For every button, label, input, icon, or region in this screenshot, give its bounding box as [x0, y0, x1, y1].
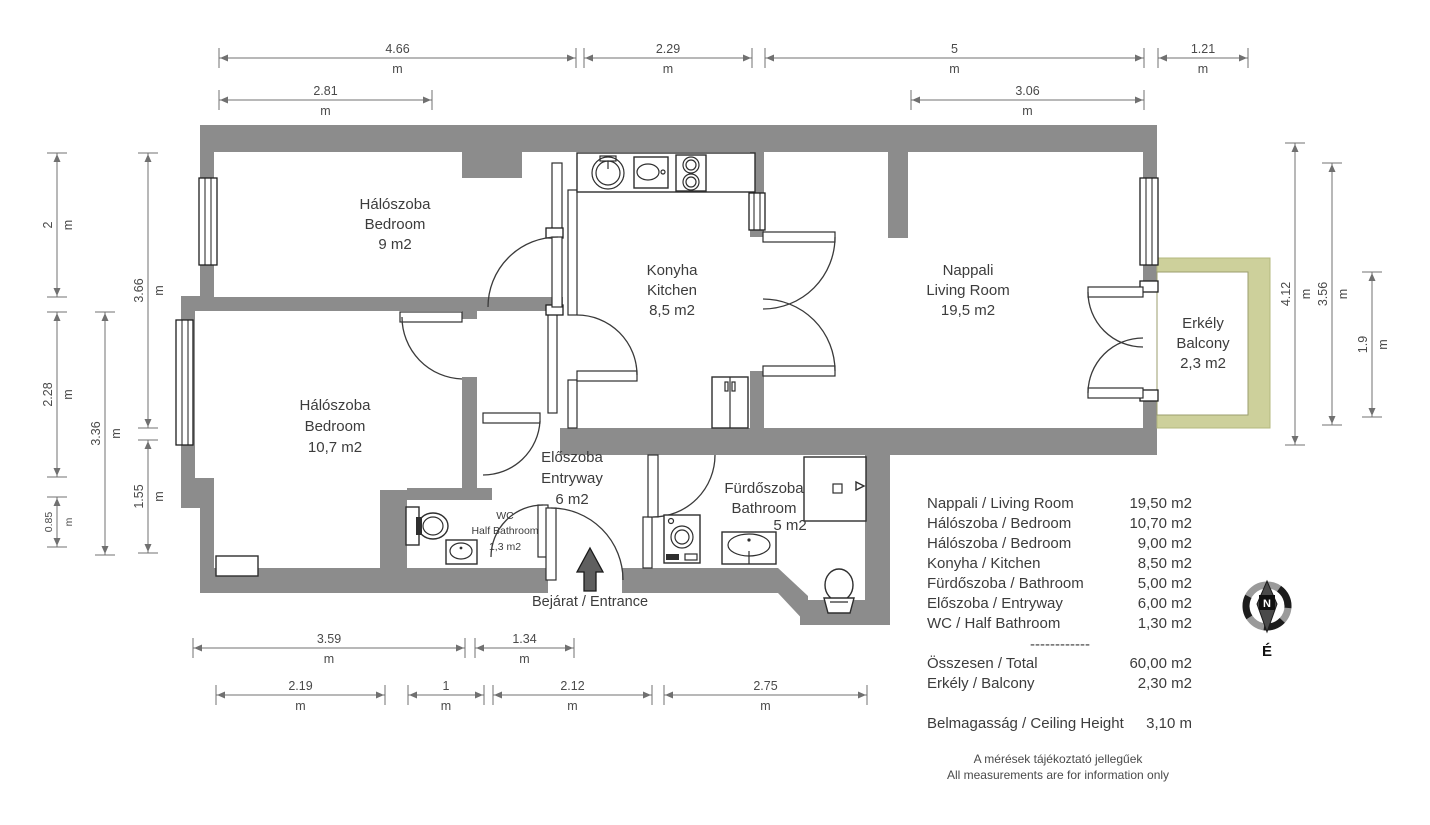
legend-row-value: 8,50 m2 — [1138, 555, 1192, 572]
entrance-label: Bejárat / Entrance — [532, 594, 648, 610]
dimension: 2.81m — [219, 84, 432, 118]
room-label-kitchen: Konyha Kitchen 8,5 m2 — [647, 262, 699, 319]
svg-text:6 m2: 6 m2 — [555, 491, 588, 508]
dimension: 2m — [41, 153, 75, 297]
dimension-arrow — [1369, 408, 1376, 416]
dimension-arrow — [766, 55, 774, 62]
svg-text:2,30 m2: 2,30 m2 — [1138, 675, 1192, 692]
dimension-arrow — [1329, 164, 1336, 172]
dimension-unit: m — [1376, 339, 1390, 349]
dimension-unit: m — [1336, 289, 1350, 299]
wc-toilet-icon — [406, 507, 448, 545]
french-doors-balcony — [1088, 287, 1143, 398]
dimension: 4.66m — [219, 42, 576, 76]
window-living-room — [1140, 178, 1158, 265]
svg-text:Nappali: Nappali — [943, 262, 994, 279]
svg-text:Előszoba: Előszoba — [541, 449, 603, 466]
dimension-value: 3.36 — [89, 421, 103, 445]
svg-text:60,00 m2: 60,00 m2 — [1129, 655, 1192, 672]
door-bedroom-10 — [400, 312, 462, 379]
dimension-arrow — [145, 544, 152, 552]
dimension-value: 1.55 — [132, 484, 146, 508]
svg-text:Balcony: Balcony — [1176, 335, 1230, 352]
svg-text:Bedroom: Bedroom — [365, 216, 426, 233]
dimension-value: 1.21 — [1191, 42, 1215, 56]
dimension: 3.56m — [1316, 163, 1350, 425]
legend-row-label: Hálószoba / Bedroom — [927, 515, 1071, 532]
svg-text:Belmagasság / Ceiling Height: Belmagasság / Ceiling Height — [927, 715, 1125, 732]
dimension-arrow — [743, 55, 751, 62]
legend-total-row: Összesen / Total 60,00 m2 — [927, 654, 1192, 672]
ceiling-height-row: Belmagasság / Ceiling Height 3,10 m — [927, 715, 1192, 732]
legend-row-label: Fürdőszoba / Bathroom — [927, 575, 1084, 592]
room-label-bedroom-9: Hálószoba Bedroom 9 m2 — [360, 196, 432, 253]
dimension-value: 0.85 — [43, 512, 55, 533]
room-label-entryway: Előszoba Entryway 6 m2 — [541, 449, 603, 508]
dimension-unit: m — [760, 699, 770, 713]
dimension: 1.9m — [1356, 272, 1390, 417]
dimension-arrow — [585, 55, 593, 62]
svg-text:Hálószoba: Hálószoba — [300, 397, 372, 414]
dimension-value: 5 — [951, 42, 958, 56]
dimension: 0.85m — [43, 497, 75, 547]
window-bedroom-top — [199, 178, 217, 265]
dimension: 1.34m — [475, 632, 574, 666]
svg-text:Half Bathroom: Half Bathroom — [471, 525, 538, 537]
dimension-arrow — [54, 313, 61, 321]
dimension-arrow — [475, 692, 483, 699]
dimension-arrow — [1135, 97, 1143, 104]
svg-text:Living Room: Living Room — [926, 282, 1009, 299]
dimension-value: 1.9 — [1356, 336, 1370, 353]
svg-text:3,10 m: 3,10 m — [1146, 715, 1192, 732]
dimension-arrow — [217, 692, 225, 699]
dimension: 2.19m — [216, 679, 385, 713]
legend-row: WC / Half Bathroom1,30 m2 — [927, 615, 1192, 632]
dimension-value: 2.29 — [656, 42, 680, 56]
legend-row: Hálószoba / Bedroom10,70 m2 — [927, 515, 1192, 532]
legend-balcony-row: Erkély / Balcony 2,30 m2 — [927, 675, 1192, 692]
dimension-value: 4.66 — [385, 42, 409, 56]
compass-icon: N É — [1238, 577, 1296, 660]
dimension-value: 3.06 — [1015, 84, 1039, 98]
radiator-icon — [216, 556, 258, 576]
svg-text:Entryway: Entryway — [541, 470, 603, 487]
kitchen-counter-icon — [577, 153, 755, 192]
dimension: 3.66m — [132, 153, 166, 428]
svg-text:Bathroom: Bathroom — [731, 500, 796, 517]
svg-text:Kitchen: Kitchen — [647, 282, 697, 299]
dimension-arrow — [423, 97, 431, 104]
dimension-value: 2.12 — [560, 679, 584, 693]
legend-row-value: 19,50 m2 — [1129, 495, 1192, 512]
svg-text:10,7 m2: 10,7 m2 — [308, 439, 362, 456]
svg-text:Erkély: Erkély — [1182, 315, 1224, 332]
legend-row-value: 5,00 m2 — [1138, 575, 1192, 592]
entrance-arrow-icon — [577, 548, 603, 591]
dimension-arrow — [54, 154, 61, 162]
dimension-value: 2.28 — [41, 382, 55, 406]
dimension-value: 2.75 — [753, 679, 777, 693]
legend-row-value: 9,00 m2 — [1138, 535, 1192, 552]
window-bedroom-bottom — [176, 320, 193, 445]
dimension-arrow — [145, 441, 152, 449]
dimension-value: 2.19 — [288, 679, 312, 693]
dimension-unit: m — [61, 220, 75, 230]
dimension: 5m — [765, 42, 1144, 76]
dimension-unit: m — [567, 699, 577, 713]
dimension-unit: m — [663, 62, 673, 76]
legend-row: Fürdőszoba / Bathroom5,00 m2 — [927, 575, 1192, 592]
dimension-unit: m — [1198, 62, 1208, 76]
legend-row-label: Konyha / Kitchen — [927, 555, 1040, 572]
dimension-unit: m — [519, 652, 529, 666]
dimension-arrow — [565, 645, 573, 652]
legend-row: Konyha / Kitchen8,50 m2 — [927, 555, 1192, 572]
fridge-icon — [712, 377, 748, 428]
legend-row-label: Előszoba / Entryway — [927, 595, 1063, 612]
dimension-arrow — [54, 538, 61, 546]
floor-plan-page: Bejárat / Entrance Hálószoba Bedroom 9 m… — [0, 0, 1430, 825]
room-label-living-room: Nappali Living Room 19,5 m2 — [926, 262, 1009, 319]
dimension: 2.28m — [41, 312, 75, 477]
dimension-arrow — [409, 692, 417, 699]
dimension-unit: m — [295, 699, 305, 713]
svg-text:Konyha: Konyha — [647, 262, 699, 279]
window-kitchen — [749, 193, 765, 230]
dimension: 2.75m — [664, 679, 867, 713]
disclaimer-line-2: All measurements are for information onl… — [947, 768, 1169, 782]
dimension-unit: m — [320, 104, 330, 118]
dimension: 2.12m — [493, 679, 652, 713]
dimension: 2.29m — [584, 42, 752, 76]
svg-text:WC: WC — [496, 510, 514, 522]
dimension-arrow — [102, 546, 109, 554]
bathroom-toilet-icon — [824, 569, 854, 613]
svg-text:1,3 m2: 1,3 m2 — [489, 541, 521, 553]
dimension-arrow — [476, 645, 484, 652]
door-bathroom — [648, 455, 715, 517]
dimension-arrow — [1159, 55, 1167, 62]
door-bedroom-9 — [488, 237, 562, 307]
dimension-unit: m — [1022, 104, 1032, 118]
svg-text:N: N — [1263, 598, 1271, 610]
dimension: 3.36m — [89, 312, 123, 555]
washing-machine-icon — [664, 515, 700, 563]
svg-text:8,5 m2: 8,5 m2 — [649, 302, 695, 319]
dimension-arrow — [1292, 144, 1299, 152]
legend-row: Nappali / Living Room19,50 m2 — [927, 495, 1192, 512]
dimension-arrow — [1292, 436, 1299, 444]
wc-sink-icon — [446, 540, 477, 564]
dimension-unit: m — [949, 62, 959, 76]
dimension-unit: m — [1299, 289, 1313, 299]
french-doors-kitchen-living — [763, 232, 835, 376]
dimension-arrow — [665, 692, 673, 699]
dimension-value: 3.66 — [132, 278, 146, 302]
svg-text:5 m2: 5 m2 — [773, 517, 806, 534]
dimension-arrow — [194, 645, 202, 652]
dimension-arrow — [858, 692, 866, 699]
svg-text:Erkély / Balcony: Erkély / Balcony — [927, 675, 1035, 692]
room-label-balcony: Erkély Balcony 2,3 m2 — [1176, 315, 1230, 372]
dimension-unit: m — [441, 699, 451, 713]
floor-plan-drawing: Bejárat / Entrance Hálószoba Bedroom 9 m… — [0, 0, 1430, 825]
dimension-unit: m — [324, 652, 334, 666]
dimension-unit: m — [152, 491, 166, 501]
dimension-unit: m — [392, 62, 402, 76]
dimension-arrow — [220, 55, 228, 62]
room-label-bedroom-10: Hálószoba Bedroom 10,7 m2 — [300, 397, 372, 456]
legend-row-label: Hálószoba / Bedroom — [927, 535, 1071, 552]
dimension-arrow — [145, 419, 152, 427]
legend-table: Nappali / Living Room19,50 m2Hálószoba /… — [927, 495, 1192, 632]
legend-row: Előszoba / Entryway6,00 m2 — [927, 595, 1192, 612]
dimension-value: 2.81 — [313, 84, 337, 98]
svg-text:2,3 m2: 2,3 m2 — [1180, 355, 1226, 372]
dimension-arrow — [567, 55, 575, 62]
dimension-arrow — [54, 288, 61, 296]
dimension-arrow — [1329, 416, 1336, 424]
dimension: 4.12m — [1279, 143, 1313, 445]
dimension-unit: m — [61, 389, 75, 399]
dimension-value: 3.56 — [1316, 282, 1330, 306]
dimension: 1m — [408, 679, 484, 713]
dimension-arrow — [102, 313, 109, 321]
dimension-unit: m — [109, 428, 123, 438]
door-hall — [483, 413, 540, 475]
svg-text:Hálószoba: Hálószoba — [360, 196, 432, 213]
dimension-value: 2 — [41, 221, 55, 228]
legend-row-value: 10,70 m2 — [1129, 515, 1192, 532]
dimension-arrow — [494, 692, 502, 699]
dimension-value: 4.12 — [1279, 282, 1293, 306]
dimension-arrow — [54, 468, 61, 476]
legend-divider: ------------ — [1030, 636, 1090, 653]
dimension: 1.55m — [132, 440, 166, 553]
dimension-arrow — [145, 154, 152, 162]
dimension-arrow — [1135, 55, 1143, 62]
disclaimer-line-1: A mérések tájékoztató jellegűek — [974, 752, 1144, 766]
door-kitchen — [577, 315, 637, 381]
svg-text:19,5 m2: 19,5 m2 — [941, 302, 995, 319]
svg-text:9 m2: 9 m2 — [378, 236, 411, 253]
dimension: 3.06m — [911, 84, 1144, 118]
dimension-arrow — [456, 645, 464, 652]
bathroom-sink-icon — [722, 532, 776, 564]
dimension-arrow — [912, 97, 920, 104]
room-label-wc: WC Half Bathroom 1,3 m2 — [471, 510, 538, 553]
dimension-arrow — [1369, 273, 1376, 281]
dimension-arrow — [376, 692, 384, 699]
room-label-bathroom: Fürdőszoba Bathroom 5 m2 — [724, 480, 806, 534]
legend-row-label: Nappali / Living Room — [927, 495, 1074, 512]
svg-text:É: É — [1262, 643, 1272, 660]
dimension-unit: m — [152, 285, 166, 295]
dimension-arrow — [1239, 55, 1247, 62]
dimension: 3.59m — [193, 632, 465, 666]
legend-row: Hálószoba / Bedroom9,00 m2 — [927, 535, 1192, 552]
dimension-value: 1 — [443, 679, 450, 693]
shower-icon — [804, 457, 866, 521]
legend-row-value: 6,00 m2 — [1138, 595, 1192, 612]
svg-text:Fürdőszoba: Fürdőszoba — [724, 480, 804, 497]
dimension-value: 3.59 — [317, 632, 341, 646]
svg-text:Bedroom: Bedroom — [305, 418, 366, 435]
svg-text:Összesen / Total: Összesen / Total — [927, 654, 1038, 672]
dimension-unit: m — [63, 517, 75, 526]
dimension-value: 1.34 — [512, 632, 536, 646]
legend-row-label: WC / Half Bathroom — [927, 615, 1060, 632]
dimension-arrow — [220, 97, 228, 104]
legend-row-value: 1,30 m2 — [1138, 615, 1192, 632]
dimension-arrow — [54, 498, 61, 506]
dimension-arrow — [643, 692, 651, 699]
dimension: 1.21m — [1158, 42, 1248, 76]
